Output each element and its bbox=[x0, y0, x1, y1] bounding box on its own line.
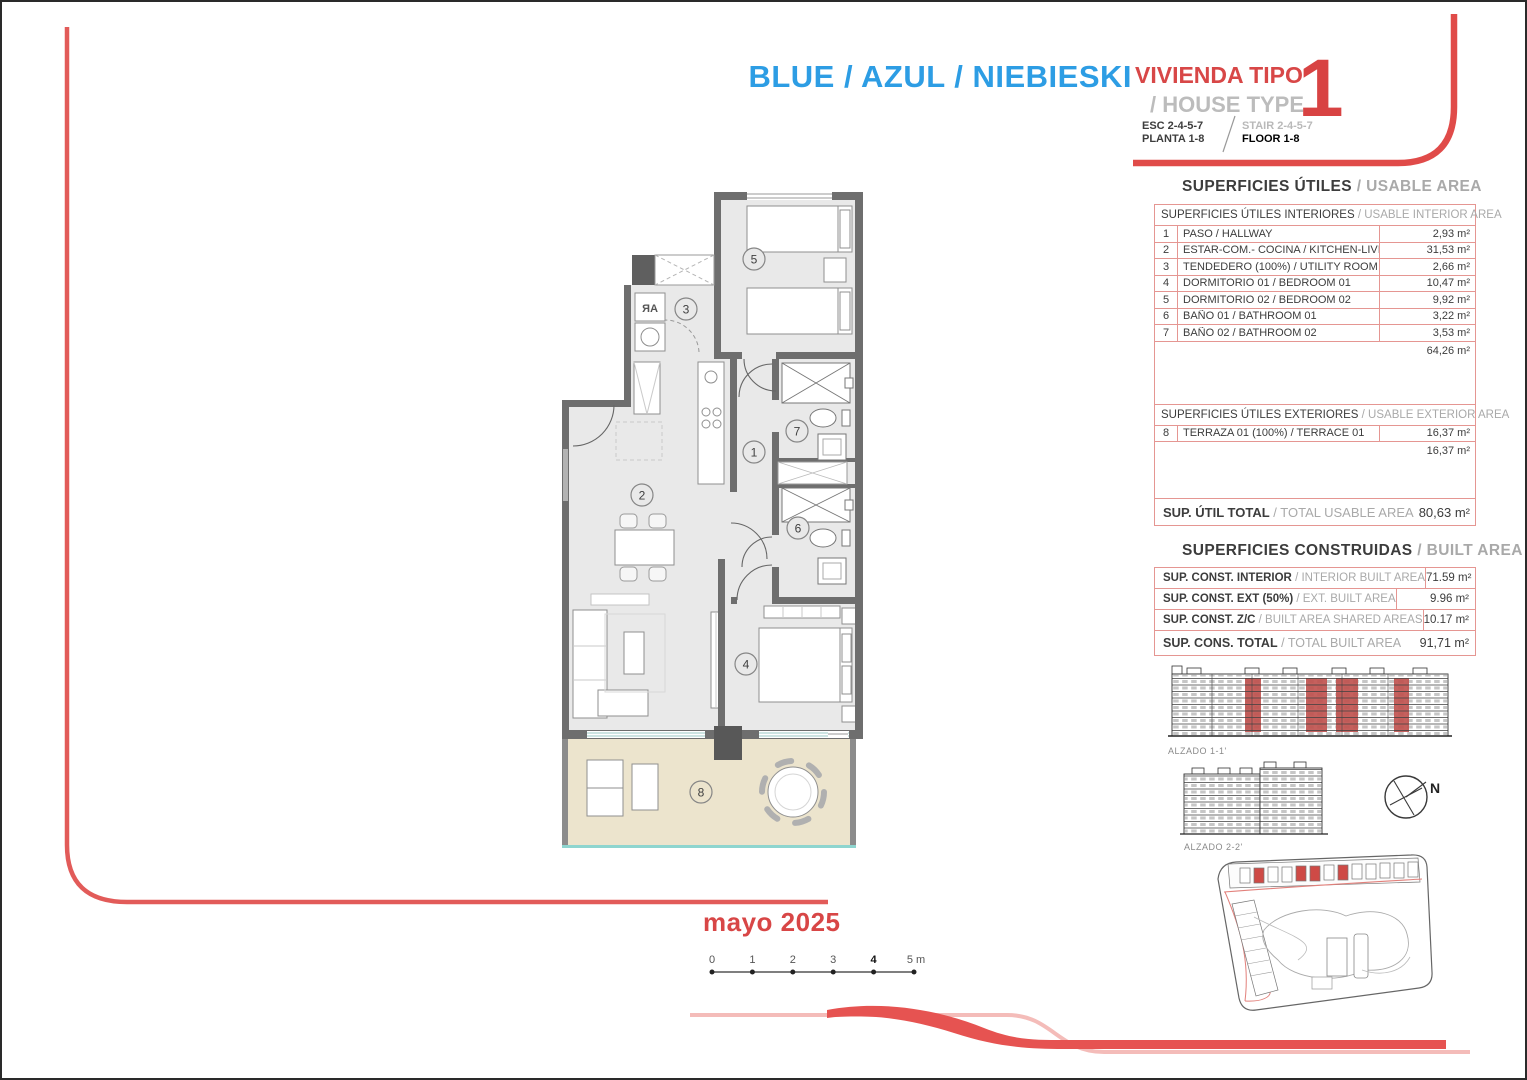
scale-bar: 0 1 2 3 4 5 m bbox=[702, 950, 932, 982]
elevation-1: ALZADO 1-1' bbox=[1168, 666, 1452, 756]
table-row: 7BAÑO 02 / BATHROOM 023,53 m² bbox=[1155, 325, 1475, 342]
terrace-edge-line bbox=[562, 845, 856, 848]
room-number-8: 8 bbox=[698, 785, 705, 799]
dwelling-type-es: VIVIENDA TIPO bbox=[1135, 62, 1303, 89]
planta-label: PLANTA 1-8 bbox=[1142, 133, 1204, 146]
stair-floor-es: ESC 2-4-5-7 PLANTA 1-8 bbox=[1142, 120, 1204, 146]
room-number-5: 5 bbox=[751, 252, 758, 266]
exterior-header: SUPERFICIES ÚTILES EXTERIORES / USABLE E… bbox=[1155, 404, 1475, 426]
site-plan bbox=[1197, 850, 1442, 1020]
room-number-2: 2 bbox=[639, 488, 646, 502]
table-row: SUP. CONST. INTERIOR / INTERIOR BUILT AR… bbox=[1155, 568, 1475, 589]
scale-label-0: 0 bbox=[709, 954, 715, 966]
building-elevations: ALZADO 1-1' ALZADO 2-2' bbox=[1162, 657, 1462, 857]
usable-total-row: SUP. ÚTIL TOTAL / TOTAL USABLE AREA 80,6… bbox=[1155, 498, 1475, 525]
table-row: SUP. CONST. EXT (50%) / EXT. BUILT AREA … bbox=[1155, 589, 1475, 610]
interior-header: SUPERFICIES ÚTILES INTERIORES / USABLE I… bbox=[1155, 205, 1475, 226]
usable-area-table: SUPERFICIES ÚTILES INTERIORES / USABLE I… bbox=[1154, 204, 1476, 526]
issue-date: mayo 2025 bbox=[703, 907, 840, 938]
built-total-row: SUP. CONS. TOTAL / TOTAL BUILT AREA 91,7… bbox=[1155, 631, 1475, 655]
room-number-1: 1 bbox=[751, 445, 758, 459]
built-area-table: SUP. CONST. INTERIOR / INTERIOR BUILT AR… bbox=[1154, 567, 1476, 656]
room-number-4: 4 bbox=[743, 657, 750, 671]
table-row: 4DORMITORIO 01 / BEDROOM 0110,47 m² bbox=[1155, 276, 1475, 293]
elevation-1-label: ALZADO 1-1' bbox=[1168, 746, 1227, 756]
exterior-subtotal: 16,37 m² bbox=[1155, 442, 1475, 462]
built-area-title: SUPERFICIES CONSTRUIDAS / BUILT AREA bbox=[1182, 542, 1523, 560]
room-number-7: 7 bbox=[794, 424, 801, 438]
esc-label: ESC 2-4-5-7 bbox=[1142, 120, 1204, 133]
elevation-2: ALZADO 2-2' bbox=[1180, 762, 1328, 852]
room-number-6: 6 bbox=[795, 521, 802, 535]
table-row: 3TENDEDERO (100%) / UTILITY ROOM2,66 m² bbox=[1155, 259, 1475, 276]
dwelling-type-en: / HOUSE TYPE bbox=[1150, 92, 1304, 118]
table-row: SUP. CONST. Z/C / BUILT AREA SHARED AREA… bbox=[1155, 610, 1475, 631]
scale-label-2: 2 bbox=[790, 954, 796, 966]
interior-subtotal: 64,26 m² bbox=[1155, 342, 1475, 362]
table-row: 2ESTAR-COM.- COCINA / KITCHEN-LIVING31,5… bbox=[1155, 243, 1475, 260]
project-name: BLUE / AZUL / NIEBIESKI bbox=[740, 59, 1132, 95]
scale-label-5: 5 m bbox=[907, 954, 925, 966]
plan-sheet: N BLUE / AZUL / NIEBIESKI VIVIENDA TIPO … bbox=[0, 0, 1527, 1080]
scale-label-1: 1 bbox=[749, 954, 755, 966]
washer-label: AR bbox=[642, 303, 658, 315]
table-row: 1PASO / HALLWAY2,93 m² bbox=[1155, 226, 1475, 243]
usable-area-title: SUPERFICIES ÚTILES / USABLE AREA bbox=[1182, 178, 1482, 196]
scale-label-4: 4 bbox=[871, 954, 878, 966]
scale-label-3: 3 bbox=[830, 954, 836, 966]
floor-plan: AR bbox=[552, 184, 872, 852]
table-row: 8TERRAZA 01 (100%) / TERRACE 0116,37 m² bbox=[1155, 426, 1475, 443]
house-type-number: 1 bbox=[1298, 46, 1344, 132]
floor-label: FLOOR 1-8 bbox=[1242, 133, 1313, 146]
room-number-3: 3 bbox=[683, 302, 690, 316]
table-row: 6BAÑO 01 / BATHROOM 013,22 m² bbox=[1155, 309, 1475, 326]
table-row: 5DORMITORIO 02 / BEDROOM 029,92 m² bbox=[1155, 292, 1475, 309]
